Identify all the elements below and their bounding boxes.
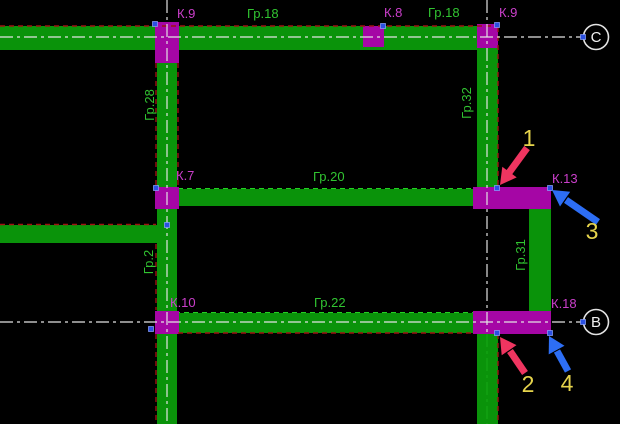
label-k7[interactable]: К.7: [176, 168, 194, 183]
grip-handle-gr22-end[interactable]: [149, 327, 154, 332]
beam-gr18[interactable]: [0, 26, 497, 50]
label-k9-top-right[interactable]: К.9: [499, 5, 517, 20]
callout-arrow-2: [500, 337, 525, 373]
label-k13[interactable]: К.13: [552, 171, 578, 186]
label-gr18-left[interactable]: Гр.18: [247, 6, 279, 21]
grip-handle-axis-b[interactable]: [581, 320, 586, 325]
label-gr2[interactable]: Гр.2: [141, 250, 156, 274]
cad-drawing-canvas[interactable]: С В К.9 Гр.18 К.8 Гр.18 К.9 Гр.28 Гр.32 …: [0, 0, 620, 424]
label-gr31[interactable]: Гр.31: [513, 239, 528, 271]
label-gr18-right[interactable]: Гр.18: [428, 5, 460, 20]
label-k8[interactable]: К.8: [384, 5, 402, 20]
grip-handle-k9-left-top[interactable]: [153, 22, 158, 27]
label-k10[interactable]: К.10: [170, 295, 196, 310]
label-gr28[interactable]: Гр.28: [142, 89, 157, 121]
grip-handle-axis-c[interactable]: [581, 35, 586, 40]
grip-handle-gr2-end[interactable]: [165, 223, 170, 228]
callout-arrow-1: [500, 148, 527, 185]
grip-handle-k13-top-left[interactable]: [495, 186, 500, 191]
callout-arrow-4: [549, 336, 568, 371]
grip-handle-k7-top[interactable]: [154, 186, 159, 191]
label-k18[interactable]: К.18: [551, 296, 577, 311]
callout-number-3: 3: [586, 218, 599, 244]
grip-handle-k13-top-right[interactable]: [548, 186, 553, 191]
beam-gr20[interactable]: [178, 189, 473, 206]
label-gr20[interactable]: Гр.20: [313, 169, 345, 184]
beam-gr22[interactable]: [157, 313, 473, 333]
beam-gr31[interactable]: [529, 209, 551, 311]
beam-gr2[interactable]: [0, 225, 168, 243]
label-gr32[interactable]: Гр.32: [459, 87, 474, 119]
axis-bubble-c-label: С: [591, 29, 602, 46]
callout-number-2: 2: [522, 371, 535, 397]
grip-handle-k18-bottom-left[interactable]: [495, 331, 500, 336]
axis-bubble-b-label: В: [591, 314, 601, 331]
label-k9-top-left[interactable]: К.9: [177, 6, 195, 21]
grip-handle-k18-bottom-right[interactable]: [548, 331, 553, 336]
column-k13[interactable]: [473, 187, 551, 209]
label-gr22[interactable]: Гр.22: [314, 295, 346, 310]
grip-handle-k9-right-top[interactable]: [495, 23, 500, 28]
callout-number-1: 1: [523, 125, 536, 151]
grip-handle-k8-top[interactable]: [381, 24, 386, 29]
callout-number-4: 4: [561, 370, 574, 396]
